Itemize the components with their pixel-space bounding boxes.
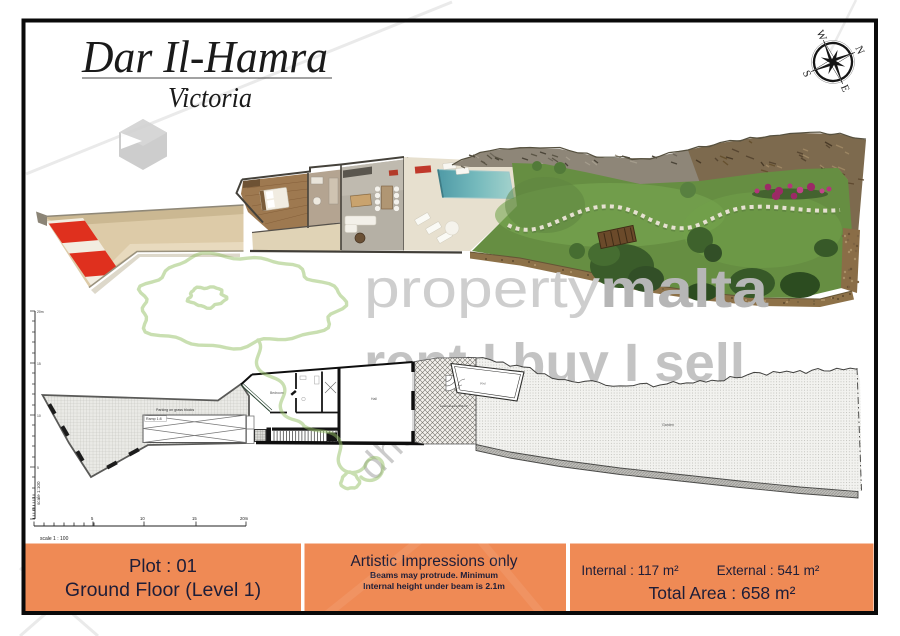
- svg-text:10: 10: [37, 414, 41, 418]
- svg-text:Bedroom: Bedroom: [270, 391, 284, 395]
- svg-text:External : 541 m²: External : 541 m²: [717, 563, 820, 578]
- svg-text:Ground Floor (Level 1): Ground Floor (Level 1): [65, 579, 261, 601]
- svg-text:Victoria: Victoria: [168, 82, 252, 114]
- svg-text:propertymalta: propertymalta: [364, 259, 769, 319]
- svg-text:Plot : 01: Plot : 01: [129, 555, 197, 576]
- svg-text:Parking on grass blocks: Parking on grass blocks: [156, 408, 194, 412]
- svg-text:Dar Il-Hamra: Dar Il-Hamra: [81, 31, 328, 82]
- svg-text:external area 541m2: external area 541m2: [440, 404, 468, 408]
- svg-text:Hall: Hall: [371, 397, 377, 401]
- svg-text:Total Area : 658 m²: Total Area : 658 m²: [649, 583, 796, 603]
- svg-text:scale 1 : 100: scale 1 : 100: [40, 536, 69, 542]
- svg-text:Internal : 117 m²: Internal : 117 m²: [581, 563, 679, 578]
- svg-text:Beams may protrude. Minimum: Beams may protrude. Minimum: [370, 570, 498, 580]
- svg-text:20m: 20m: [37, 310, 44, 314]
- svg-text:15: 15: [192, 516, 197, 521]
- svg-text:20m: 20m: [240, 516, 249, 521]
- svg-text:5: 5: [37, 466, 39, 470]
- svg-text:Ramp 1:8: Ramp 1:8: [146, 417, 162, 421]
- svg-text:15: 15: [37, 362, 41, 366]
- svg-text:Garden: Garden: [662, 423, 674, 427]
- svg-text:10: 10: [140, 516, 145, 521]
- svg-text:scale 1:100: scale 1:100: [36, 481, 41, 505]
- svg-text:Internal height under beam is: Internal height under beam is 2.1m: [363, 581, 505, 591]
- svg-text:pool: pool: [480, 381, 486, 386]
